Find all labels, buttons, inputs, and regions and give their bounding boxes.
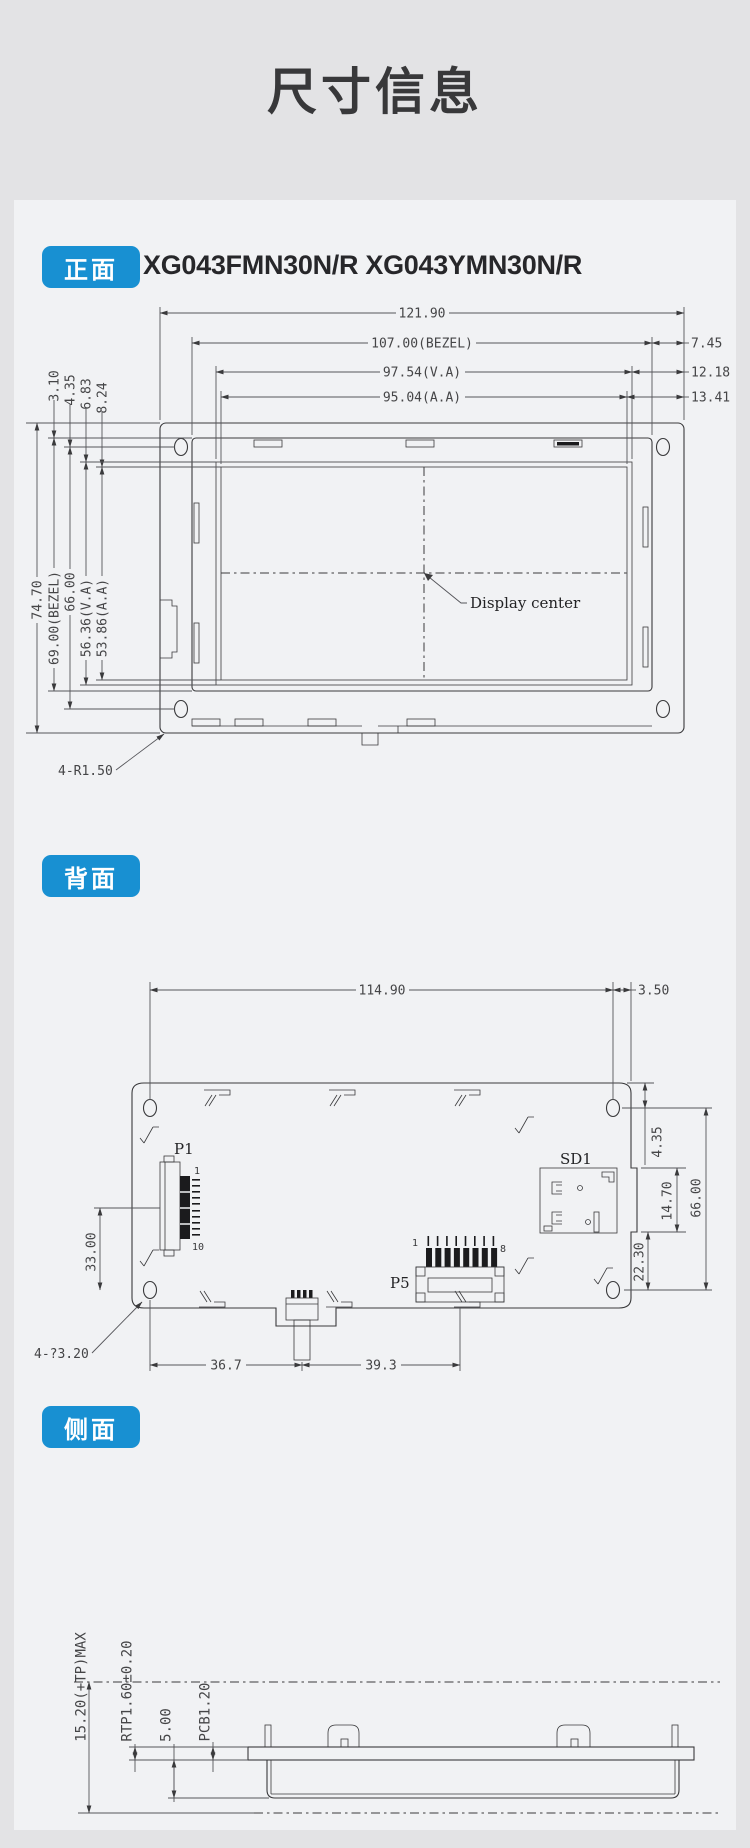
p5-pin1-label: 1 (412, 1238, 418, 1249)
dim-sd-height: 14.70 (661, 1181, 676, 1220)
dim-p1-offset: 33.00 (85, 1232, 100, 1271)
section-badge-back: 背面 (42, 855, 140, 897)
back-view-drawing: P1 1 10 1 8 P5 SD1 (14, 960, 730, 1390)
dim-height-bezel: 69.00(BEZEL) (48, 571, 63, 665)
front-top-dimensions: 121.90 107.00(BEZEL) 7.45 97.54(V.A) 12.… (160, 306, 730, 464)
dim-hole-span: 114.90 (359, 984, 406, 999)
back-dimensions: 114.90 3.50 4.35 66.00 14.70 22.30 33.00… (34, 982, 712, 1374)
p5-label: P5 (390, 1274, 410, 1292)
side-dimensions: 15.20(+TP)MAX RTP1.60±0.20 5.00 PCB1.20 (74, 1632, 270, 1813)
dim-hole-height: 66.00 (690, 1178, 705, 1217)
section-badge-side: 侧面 (42, 1406, 140, 1448)
sd-card-slot: SD1 (540, 1150, 617, 1233)
dim-bottom-right: 39.3 (365, 1359, 396, 1374)
dim-right-va-edge: 12.18 (691, 366, 730, 381)
dim-corner-note: 4-R1.50 (58, 764, 113, 779)
dim-side-total: 15.20(+TP)MAX (74, 1632, 90, 1742)
dim-height-total: 74.70 (31, 580, 46, 619)
back-board-outline (132, 1083, 637, 1326)
dim-height-aa: 53.86(A.A) (96, 579, 111, 657)
dim-sd-bottom: 22.30 (633, 1242, 648, 1281)
dim-width-total: 121.90 (399, 307, 446, 322)
dim-side-gap: 5.00 (159, 1708, 175, 1742)
front-center-cross: Display center (221, 467, 627, 680)
dim-right-aa-edge: 13.41 (691, 391, 730, 406)
dim-hole-note: 4-?3.20 (34, 1347, 89, 1362)
front-corner-note: 4-R1.50 (58, 734, 164, 779)
dim-width-aa: 95.04(A.A) (383, 391, 461, 406)
display-center-label: Display center (470, 594, 581, 612)
p1-label: P1 (174, 1140, 194, 1158)
dim-side-pcb: PCB1.20 (198, 1682, 214, 1741)
dim-width-va: 97.54(V.A) (383, 366, 461, 381)
p1-pin1-label: 1 (194, 1166, 200, 1177)
dim-right-bezel-edge: 7.45 (691, 337, 722, 352)
dim-width-bezel: 107.00(BEZEL) (371, 337, 473, 352)
side-profile (74, 1682, 720, 1813)
dim-top-bezel: 3.10 (48, 370, 63, 401)
dim-hole-top: 4.35 (651, 1126, 666, 1157)
front-view-drawing: Display center 121.90 107.00(BEZEL) 7.45… (14, 270, 730, 800)
backlight-connector (286, 1290, 318, 1360)
dim-side-rtp: RTP1.60±0.20 (120, 1640, 136, 1741)
dim-height-va: 56.36(V.A) (80, 579, 95, 657)
side-view-drawing: 15.20(+TP)MAX RTP1.60±0.20 5.00 PCB1.20 (14, 1520, 730, 1830)
dim-hole-offset: 3.50 (638, 984, 669, 999)
sd1-label: SD1 (560, 1150, 592, 1168)
dim-bottom-left: 36.7 (210, 1359, 241, 1374)
dim-height-holes: 66.00 (64, 572, 79, 611)
p1-pin10-label: 10 (192, 1242, 204, 1253)
dim-top-aa: 8.24 (96, 382, 111, 413)
dim-top-va: 6.83 (80, 378, 95, 409)
p5-pin8-label: 8 (500, 1244, 506, 1255)
page-title: 尺寸信息 (0, 52, 750, 124)
dim-top-hole: 4.35 (64, 374, 79, 405)
front-module-outline (160, 423, 684, 745)
p1-connector: P1 1 10 (160, 1140, 204, 1256)
p5-connector: 1 8 P5 (390, 1236, 506, 1302)
